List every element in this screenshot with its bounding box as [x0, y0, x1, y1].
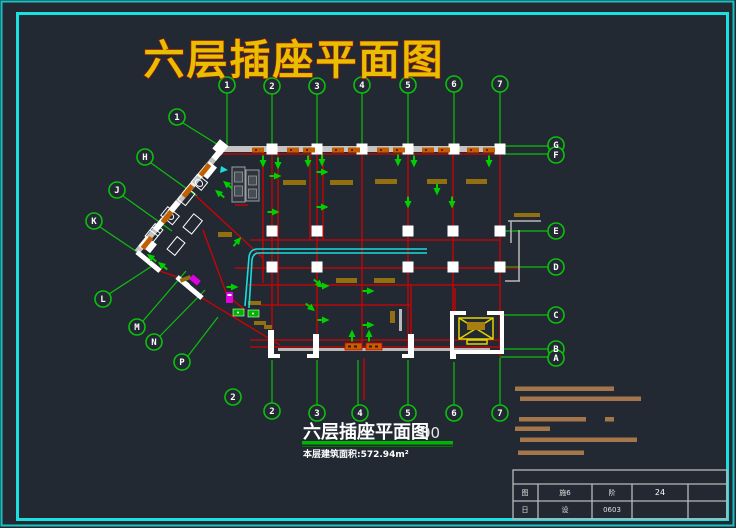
axis-bubble-label: 6 [451, 409, 456, 419]
axis-bubble-label: 7 [497, 80, 502, 90]
axis-bubble-label: 3 [314, 409, 319, 419]
axis-bubble-label: D [553, 263, 559, 273]
floor-plan-canvas: 1 2 3 4 5 6 7 2 3 4 5 6 7 G F E D C B A [0, 0, 736, 528]
footer-underline [302, 441, 453, 445]
title-block-cell: 0603 [603, 506, 621, 514]
axis-bubble-label: P [179, 358, 185, 368]
axis-bubble-label: 1 [174, 113, 179, 123]
axis-bubble-label: 7 [497, 409, 502, 419]
title-block-cell: 施6 [559, 488, 571, 497]
footer-scale: 00 [421, 424, 440, 442]
axis-bubble-label: K [91, 217, 97, 227]
electrical-panels [232, 167, 259, 202]
axis-bubble-label: 5 [405, 409, 410, 419]
title-block-cell: 图 [522, 489, 529, 497]
title-block-cell: 阶 [609, 488, 616, 497]
title-block-cell: 24 [655, 488, 665, 497]
axis-bubble-label: 2 [230, 393, 235, 403]
axis-bubble-label: 4 [357, 409, 363, 419]
axis-bubble-label: H [142, 153, 147, 163]
axis-bubble-label: C [553, 311, 558, 321]
axis-bubble-label: J [114, 186, 119, 196]
footer-title: 六层插座平面图 [303, 421, 429, 443]
axis-bubble-label: E [553, 227, 558, 237]
main-title: 六层插座平面图 [144, 36, 445, 84]
axis-bubble-label: 2 [269, 407, 274, 417]
axis-bubble-label: L [100, 295, 106, 305]
axis-bubble-label: G [553, 141, 558, 151]
axis-bubble-label: 6 [451, 80, 456, 90]
title-block-cell: 设 [562, 505, 569, 514]
axis-bubble-label: F [553, 151, 558, 161]
axis-bubble-label: M [134, 323, 140, 333]
title-block-cell: 日 [522, 506, 529, 514]
axis-bubble-label: A [553, 354, 559, 364]
elevator-car [467, 322, 485, 330]
axis-bubble-label: N [151, 338, 156, 348]
area-note: 本层建筑面积:572.94m² [303, 448, 409, 460]
